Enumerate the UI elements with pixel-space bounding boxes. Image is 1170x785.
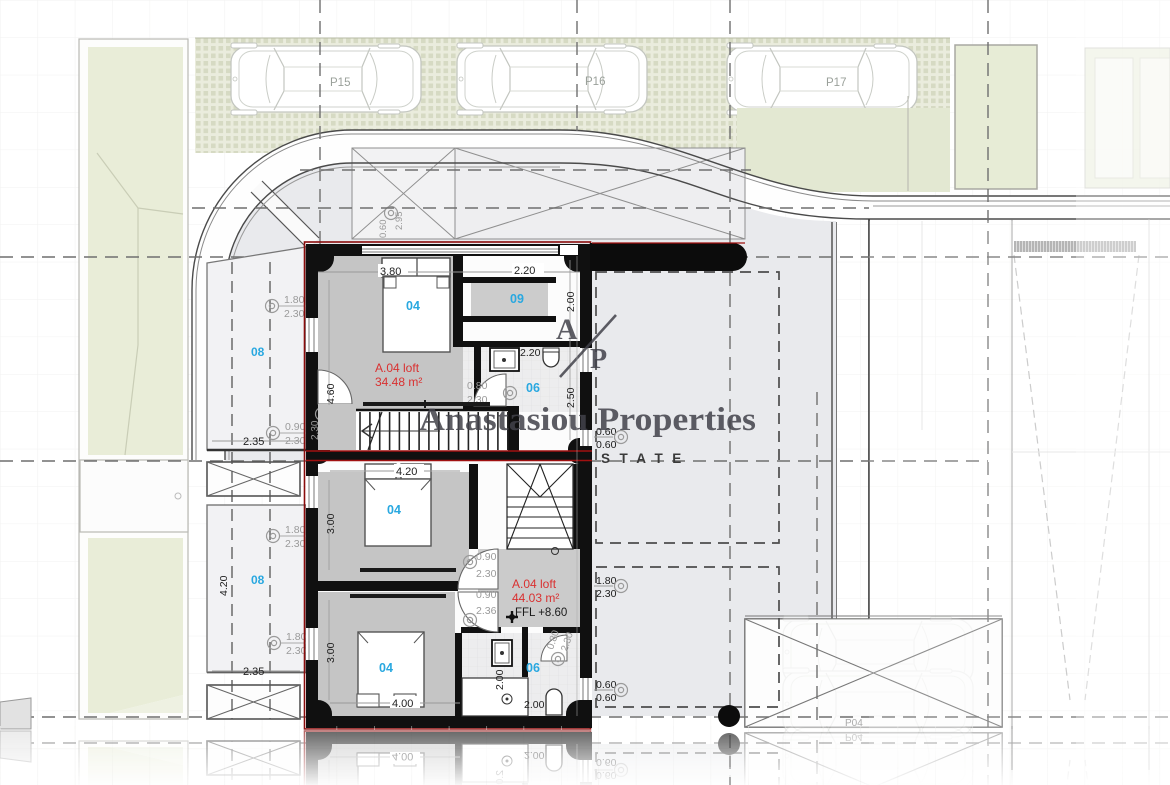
svg-text:09: 09: [510, 292, 524, 306]
svg-text:0.80: 0.80: [467, 380, 488, 392]
svg-text:1.80: 1.80: [285, 524, 306, 536]
svg-text:2.00: 2.00: [565, 291, 577, 312]
svg-text:2.35: 2.35: [243, 436, 264, 448]
svg-text:2.20: 2.20: [514, 265, 535, 277]
svg-text:FFL +8.60: FFL +8.60: [515, 607, 567, 619]
svg-text:3.00: 3.00: [325, 513, 337, 534]
svg-text:P: P: [590, 344, 607, 375]
svg-text:2.95: 2.95: [394, 212, 405, 231]
svg-text:2.30: 2.30: [476, 568, 497, 580]
svg-text:0.90: 0.90: [476, 551, 497, 563]
svg-text:08: 08: [251, 345, 265, 359]
svg-text:4.20: 4.20: [218, 575, 230, 596]
svg-text:04: 04: [406, 299, 420, 313]
svg-text:A.04 loft: A.04 loft: [375, 361, 420, 375]
svg-text:06: 06: [526, 381, 540, 395]
svg-text:P16: P16: [585, 76, 605, 88]
svg-text:34.48 m²: 34.48 m²: [375, 375, 422, 389]
svg-text:P17: P17: [826, 77, 846, 89]
svg-text:3.00: 3.00: [325, 642, 337, 663]
svg-text:44.03 m²: 44.03 m²: [512, 591, 559, 605]
svg-text:P15: P15: [330, 77, 350, 89]
svg-text:08: 08: [251, 573, 265, 587]
svg-text:A.04 loft: A.04 loft: [512, 577, 557, 591]
svg-text:2.30: 2.30: [284, 308, 305, 320]
svg-text:2.36: 2.36: [476, 605, 497, 617]
svg-text:A: A: [556, 313, 578, 346]
svg-text:Anastasiou Properties: Anastasiou Properties: [419, 402, 756, 438]
svg-text:0.90: 0.90: [285, 421, 306, 433]
svg-text:4.20: 4.20: [396, 466, 417, 478]
svg-text:2.30: 2.30: [285, 538, 306, 550]
svg-text:0.90: 0.90: [476, 589, 497, 601]
svg-text:2.20: 2.20: [520, 347, 541, 359]
svg-text:1.80: 1.80: [286, 631, 307, 643]
svg-text:4.60: 4.60: [325, 383, 337, 404]
svg-text:04: 04: [387, 503, 401, 517]
svg-text:0.60: 0.60: [596, 439, 617, 451]
svg-text:04: 04: [379, 661, 393, 675]
svg-text:0.60: 0.60: [378, 220, 389, 239]
svg-text:2.30: 2.30: [596, 588, 617, 600]
svg-text:2.30: 2.30: [286, 645, 307, 657]
svg-text:06: 06: [526, 661, 540, 675]
svg-text:1.80: 1.80: [284, 294, 305, 306]
svg-text:1.80: 1.80: [596, 575, 617, 587]
svg-text:STATE: STATE: [601, 451, 691, 466]
